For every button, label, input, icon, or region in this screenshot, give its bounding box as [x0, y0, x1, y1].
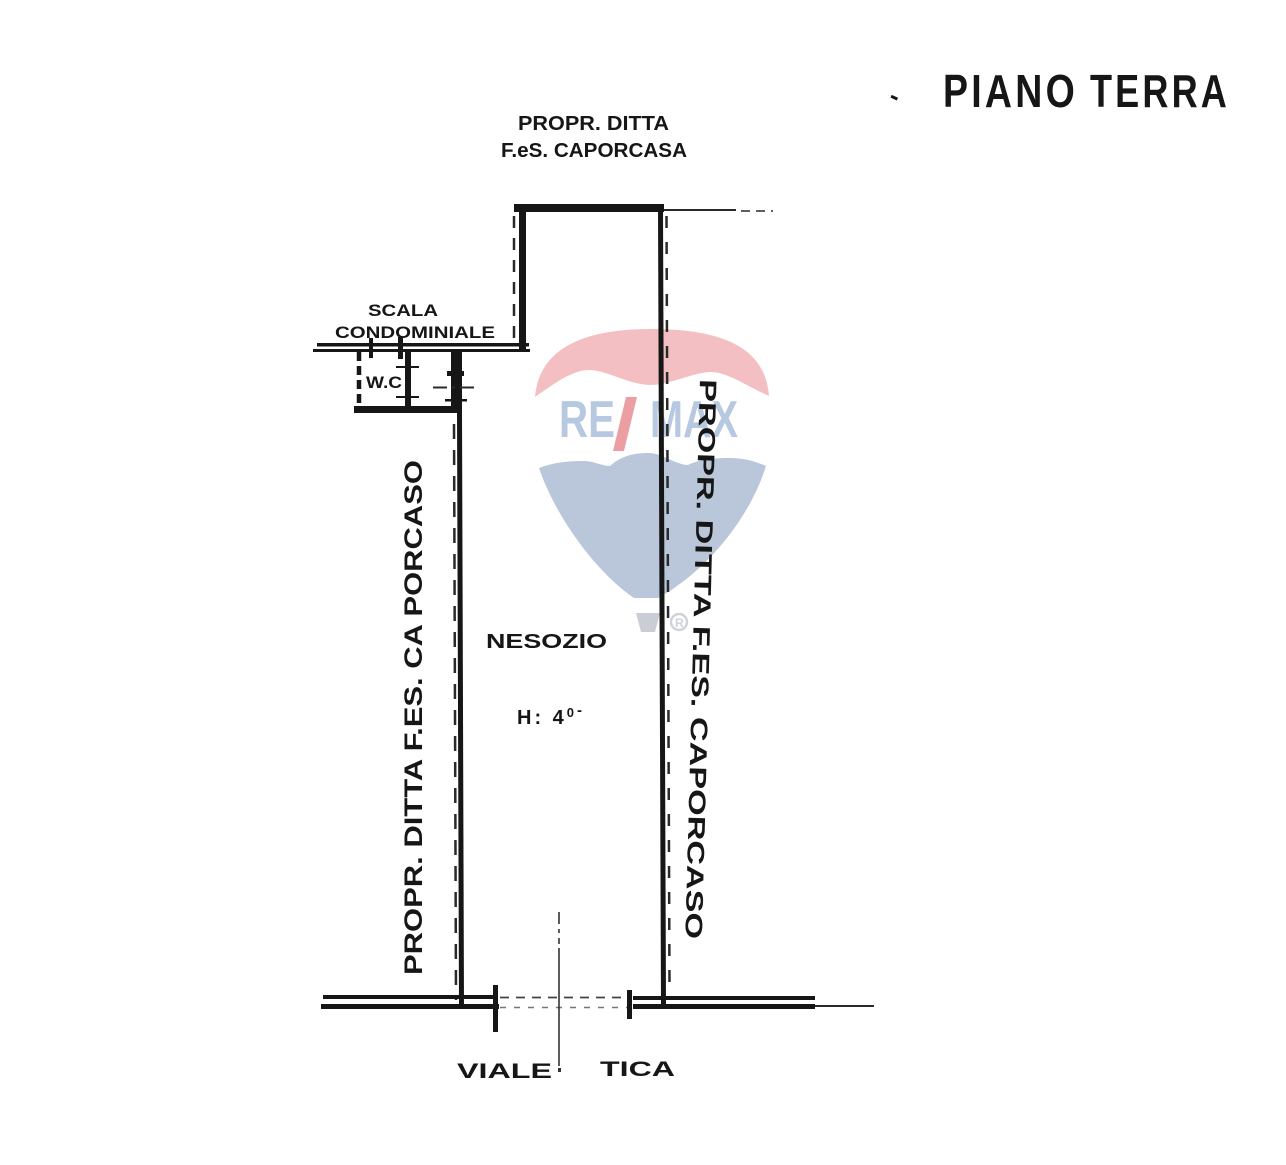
svg-text:R: R [675, 616, 684, 630]
svg-text:TERRA: TERRA [1090, 65, 1230, 117]
svg-text:RE: RE [559, 391, 615, 449]
svg-text:CONDOMINIALE: CONDOMINIALE [335, 323, 495, 342]
svg-text:NESOZIO: NESOZIO [486, 631, 607, 653]
svg-text:TICA: TICA [600, 1058, 675, 1081]
svg-text:VIALE: VIALE [457, 1060, 552, 1083]
svg-text:PROPR. DITTA F.ES. CA PORCASO: PROPR. DITTA F.ES. CA PORCASO [400, 460, 428, 975]
svg-text:W.C: W.C [366, 373, 402, 392]
svg-text:SCALA: SCALA [368, 301, 438, 320]
svg-text:F.eS. CAPORCASA: F.eS. CAPORCASA [501, 140, 687, 162]
svg-text:PROPR. DITTA: PROPR. DITTA [518, 113, 669, 135]
svg-text:PIANO: PIANO [943, 65, 1078, 117]
